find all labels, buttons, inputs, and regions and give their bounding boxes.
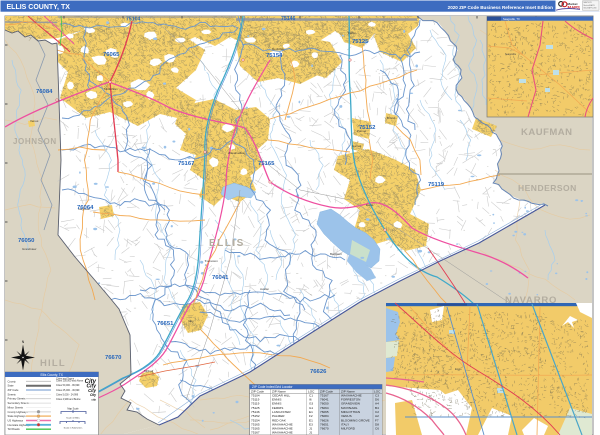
svg-text:State: State: [8, 384, 15, 388]
svg-text:75104: 75104: [126, 16, 141, 22]
svg-text:County: County: [8, 379, 17, 383]
svg-text:Avalon: Avalon: [260, 287, 269, 291]
svg-text:Seagoville, TX: Seagoville, TX: [503, 17, 520, 21]
svg-text:ZIP Code: ZIP Code: [8, 388, 19, 392]
svg-text:US Highways: US Highways: [8, 419, 24, 423]
svg-text:Cities 25,000 - 49,999: Cities 25,000 - 49,999: [56, 389, 80, 392]
svg-text:County Highways: County Highways: [8, 410, 29, 414]
svg-text:76626: 76626: [310, 369, 327, 375]
svg-text:76670: 76670: [105, 355, 122, 361]
svg-text:Scale in Miles: Scale in Miles: [66, 418, 80, 420]
svg-text:76084: 76084: [36, 89, 53, 95]
svg-text:75146: 75146: [281, 16, 296, 22]
svg-text:Ennis: Ennis: [455, 367, 462, 371]
svg-text:Seagoville: Seagoville: [505, 53, 517, 56]
svg-text:City: City: [88, 388, 97, 393]
svg-text:Waxahachie: Waxahachie: [228, 151, 245, 155]
svg-text:Minor Streets: Minor Streets: [8, 405, 24, 409]
svg-text:75125: 75125: [352, 39, 369, 45]
svg-text:State Highways: State Highways: [8, 414, 27, 418]
svg-text:Ferris: Ferris: [348, 31, 356, 35]
svg-text:Garrett: Garrett: [352, 144, 362, 148]
svg-text:J1: J1: [309, 431, 313, 435]
svg-text:Italy: Italy: [188, 319, 194, 323]
svg-text:76050: 76050: [18, 238, 35, 244]
svg-text:Ellis County, TX: Ellis County, TX: [41, 373, 64, 377]
svg-text:Cities 4,999 and Below: Cities 4,999 and Below: [56, 398, 81, 401]
svg-text:76670: 76670: [320, 427, 329, 431]
svg-text:76041: 76041: [212, 275, 229, 281]
svg-text:ELLIS: ELLIS: [209, 238, 245, 249]
svg-text:MILFORD: MILFORD: [341, 427, 356, 431]
svg-text:800-MAPS-080: 800-MAPS-080: [584, 6, 597, 9]
svg-text:DALLAS: DALLAS: [252, 17, 273, 22]
svg-text:JOHNSON: JOHNSON: [13, 137, 57, 146]
svg-text:Toll Roads: Toll Roads: [8, 427, 21, 431]
svg-text:Cities 5,000 - 24,999: Cities 5,000 - 24,999: [56, 393, 79, 396]
svg-text:Venus: Venus: [30, 119, 39, 123]
svg-text:75165: 75165: [258, 161, 275, 167]
svg-text:Cities 50,000 - 99,999: Cities 50,000 - 99,999: [56, 384, 80, 387]
svg-text:ZIP Code Index/Grid Locator: ZIP Code Index/Grid Locator: [252, 385, 293, 389]
svg-text:75167: 75167: [178, 161, 195, 167]
svg-text:Bardwell: Bardwell: [330, 252, 342, 256]
svg-text:Cities 100,000 and Above: Cities 100,000 and Above: [56, 380, 84, 383]
svg-text:ELLIS COUNTY, TX: ELLIS COUNTY, TX: [7, 4, 71, 11]
svg-text:75152: 75152: [359, 125, 376, 131]
svg-text:Primary Streets: Primary Streets: [8, 397, 27, 401]
svg-text:76065: 76065: [103, 52, 120, 58]
svg-text:Midlothian: Midlothian: [104, 87, 118, 91]
svg-text:Forreston: Forreston: [205, 259, 218, 263]
svg-text:Scale in Kilometers: Scale in Kilometers: [64, 427, 84, 430]
svg-text:City: City: [90, 393, 96, 397]
svg-text:76064: 76064: [77, 205, 94, 211]
svg-text:MAPS BY: MAPS BY: [584, 1, 593, 4]
svg-text:2020 ZIP Code Business Referen: 2020 ZIP Code Business Reference Inset E…: [448, 5, 554, 10]
svg-text:city: city: [92, 398, 97, 402]
svg-text:HILL: HILL: [40, 358, 66, 369]
svg-text:WAXAHACHIE: WAXAHACHIE: [272, 431, 293, 435]
svg-text:KAUFMAN: KAUFMAN: [521, 127, 573, 138]
svg-text:Grandview: Grandview: [22, 247, 37, 251]
svg-text:Milford: Milford: [144, 369, 153, 373]
svg-text:75119: 75119: [428, 182, 445, 188]
svg-text:MarketMAPS: MarketMAPS: [584, 4, 596, 7]
svg-text:75167: 75167: [251, 431, 260, 435]
svg-text:76651: 76651: [157, 321, 174, 327]
svg-text:C6: C6: [375, 427, 379, 431]
svg-text:Bristol: Bristol: [387, 116, 396, 120]
svg-text:Red Oak: Red Oak: [272, 47, 284, 51]
svg-text:Streets: Streets: [8, 392, 17, 396]
svg-text:HENDERSON: HENDERSON: [518, 183, 577, 193]
svg-text:75154: 75154: [266, 53, 283, 59]
svg-text:Ennis: Ennis: [366, 203, 374, 207]
